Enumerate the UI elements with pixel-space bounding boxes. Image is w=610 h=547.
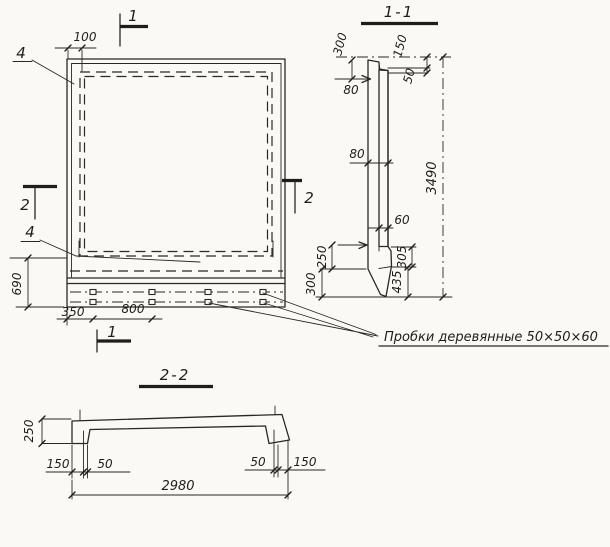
dim-depth: 250 <box>22 416 71 447</box>
wall-face-strip <box>379 70 388 247</box>
dim-label: 80 <box>349 147 365 161</box>
section-2-2-title: 2-2 <box>160 366 191 384</box>
slab-section-concrete <box>72 415 290 444</box>
dim-frame-inset: 100 <box>55 30 97 71</box>
dim-label: 150 <box>390 33 410 59</box>
plug-note: Пробки деревянные 50×50×60 <box>209 293 608 346</box>
dim-label: 300 <box>304 272 318 295</box>
reinforcement-frame-dashed-outer <box>80 72 272 256</box>
dim-label: 300 <box>330 31 350 57</box>
dim-label: 100 <box>74 30 97 44</box>
dim-toe: 305 435 <box>390 244 416 300</box>
dim-plug-spacing: 350 800 <box>57 302 162 325</box>
callout-4-top: 4 <box>13 44 74 84</box>
plug <box>149 290 155 295</box>
reinforcement-frame-dashed-inner <box>85 77 268 252</box>
dim-label: 250 <box>315 245 329 268</box>
dim-overall-height: 3490 <box>425 54 446 300</box>
dim-overall-width: 2980 <box>69 479 291 499</box>
callout-label: 4 <box>25 223 35 241</box>
dim-label: 690 <box>10 272 24 295</box>
section-mark-1-bottom: 1 <box>97 323 131 352</box>
dim-rib-height: 690 <box>10 255 66 310</box>
dim-label: 80 <box>343 83 359 97</box>
plug <box>90 290 96 295</box>
section-1-1-header: 1-1 <box>361 3 438 24</box>
plug <box>90 300 96 305</box>
drawing-sheet: 100 1 1 2 2 4 <box>0 0 610 547</box>
dim-label: 800 <box>122 302 145 316</box>
dim-label: 150 <box>47 457 70 471</box>
section-1-1-title: 1-1 <box>384 3 415 21</box>
plug <box>205 300 211 305</box>
section-1-1: 1-1 150 50 300 80 80 <box>304 3 452 300</box>
cut-mark-label: 2 <box>20 196 30 214</box>
dim-label: 150 <box>294 455 317 469</box>
dim-label: 435 <box>390 271 404 294</box>
section-mark-2-right: 2 <box>282 181 314 214</box>
dim-label: 50 <box>97 457 113 471</box>
technical-drawing: 100 1 1 2 2 4 <box>0 0 610 547</box>
plug-row-centerlines <box>70 292 283 302</box>
cut-mark-label: 1 <box>128 7 138 25</box>
plug <box>205 290 211 295</box>
dim-label: 350 <box>62 305 85 319</box>
frame-corner-hooks <box>79 241 273 257</box>
dim-thickness-bottom: 60 <box>368 213 410 231</box>
plug <box>149 300 155 305</box>
dim-heel: 250 300 <box>304 242 452 300</box>
dim-label: 3490 <box>425 161 440 194</box>
dim-label: 250 <box>22 419 36 442</box>
panel-outline <box>67 59 285 307</box>
cut-mark-label: 1 <box>107 323 117 341</box>
leader-lines <box>209 293 378 337</box>
dim-label: 60 <box>394 213 410 227</box>
note-text: Пробки деревянные 50×50×60 <box>384 330 598 345</box>
dim-label: 50 <box>400 66 418 85</box>
dim-thickness-mid: 80 <box>349 147 393 166</box>
section-2-2-header: 2-2 <box>139 366 213 387</box>
section-2-2: 2-2 250 150 50 50 150 <box>22 366 325 499</box>
dim-label: 305 <box>395 246 409 269</box>
dim-label: 2980 <box>161 479 194 494</box>
rib-joint-lines <box>67 278 285 284</box>
section-mark-2-left: 2 <box>20 187 57 220</box>
plan-view: 100 1 1 2 2 4 <box>10 7 314 352</box>
dim-label: 50 <box>250 455 266 469</box>
panel-inner-edge <box>72 64 282 278</box>
cut-mark-label: 2 <box>304 189 314 207</box>
section-mark-1-top: 1 <box>120 7 148 46</box>
callout-label: 4 <box>16 44 26 62</box>
dim-thickness-top: 80 <box>335 76 371 98</box>
